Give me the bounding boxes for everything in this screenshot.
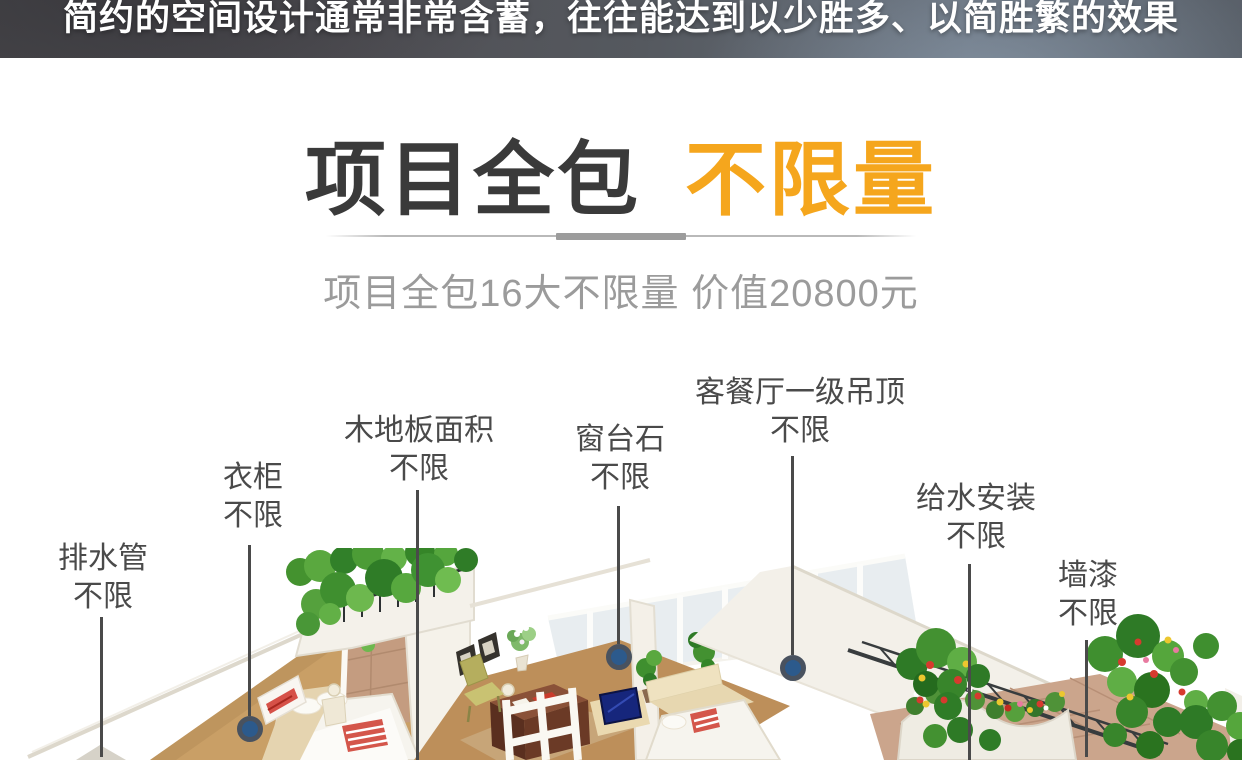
callout-label: 窗台石	[575, 421, 665, 459]
callout-window-sill-stone: 窗台石 不限	[575, 421, 665, 497]
callout-drain-pipe: 排水管 不限	[58, 540, 148, 616]
callout-line-drain-pipe	[100, 617, 103, 757]
top-banner: 简约的空间设计通常非常含蓄，往往能达到以少胜多、以简胜繁的效果	[0, 0, 1242, 58]
page-title-accent: 不限量	[685, 136, 937, 226]
page-title-main: 项目全包	[305, 136, 641, 226]
callout-value: 不限	[916, 518, 1036, 556]
promo-page: 简约的空间设计通常非常含蓄，往往能达到以少胜多、以简胜繁的效果 项目全包不限量 …	[0, 0, 1242, 760]
callout-value: 不限	[695, 412, 905, 450]
title-divider	[326, 233, 916, 240]
callout-value: 不限	[575, 459, 665, 497]
callout-wall-paint: 墙漆 不限	[1058, 557, 1118, 633]
callout-dot-wardrobe	[237, 716, 263, 742]
callout-dot-window-sill-stone	[606, 644, 632, 670]
callout-value: 不限	[223, 497, 283, 535]
divider-thick-segment	[556, 233, 686, 240]
banner-caption: 简约的空间设计通常非常含蓄，往往能达到以少胜多、以简胜繁的效果	[0, 0, 1242, 41]
callout-label: 墙漆	[1058, 557, 1118, 595]
callout-value: 不限	[344, 450, 494, 488]
callout-line-wood-floor-area	[416, 490, 419, 760]
callout-label: 排水管	[58, 540, 148, 578]
callout-label: 木地板面积	[344, 412, 494, 450]
callout-label: 客餐厅一级吊顶	[695, 374, 905, 412]
callout-line-wardrobe	[248, 545, 251, 716]
callout-line-window-sill-stone	[617, 506, 620, 644]
callout-wood-floor-area: 木地板面积 不限	[344, 412, 494, 488]
callout-dot-ceiling	[780, 655, 806, 681]
callout-value: 不限	[58, 578, 148, 616]
callout-line-wall-paint	[1085, 640, 1088, 757]
callout-ceiling: 客餐厅一级吊顶 不限	[695, 374, 905, 450]
page-subtitle: 项目全包16大不限量 价值20800元	[0, 262, 1242, 317]
callout-water-supply: 给水安装 不限	[916, 480, 1036, 556]
callout-label: 衣柜	[223, 459, 283, 497]
page-title: 项目全包不限量	[0, 136, 1242, 227]
callout-line-water-supply	[968, 564, 971, 760]
callout-line-ceiling	[791, 456, 794, 655]
callout-wardrobe: 衣柜 不限	[223, 459, 283, 535]
callout-value: 不限	[1058, 595, 1118, 633]
callout-label: 给水安装	[916, 480, 1036, 518]
